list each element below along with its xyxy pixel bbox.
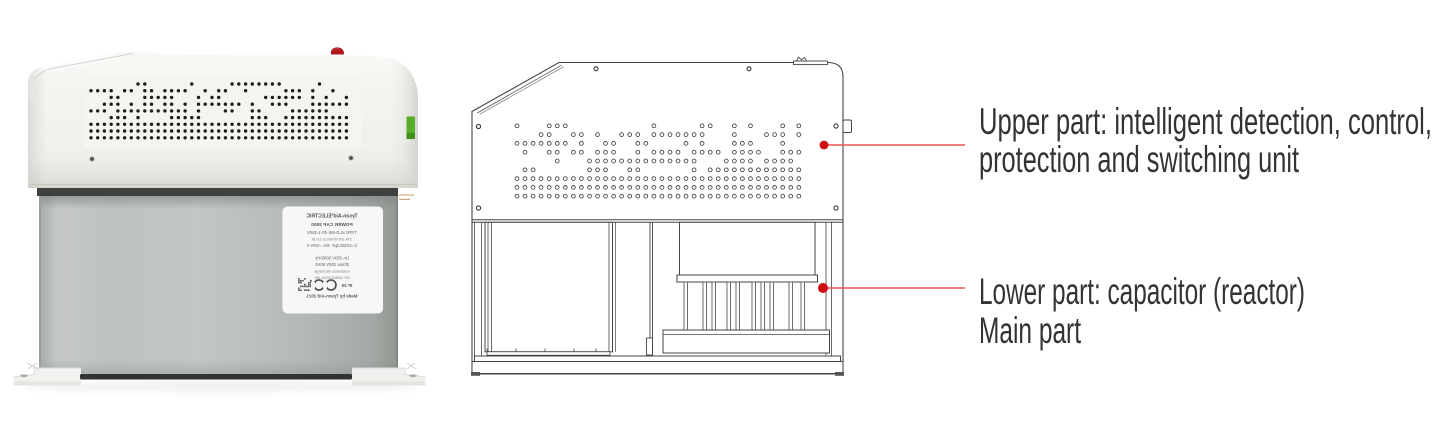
svg-text:3fmax 250V 50Hz: 3fmax 250V 50Hz xyxy=(315,262,349,267)
svg-text:IP 20: IP 20 xyxy=(341,283,352,288)
svg-text:Made by Tyson-Aid 2021: Made by Tyson-Aid 2021 xyxy=(306,294,357,299)
svg-text:Un 250V 50/60Hz: Un 250V 50/60Hz xyxy=(315,256,349,261)
svg-text:resistance discharge: resistance discharge xyxy=(314,269,350,274)
svg-text:Lower part: capacitor (reactor: Lower part: capacitor (reactor) xyxy=(979,271,1305,312)
svg-text:TYPE KLD-MK-20-1-250V: TYPE KLD-MK-20-1-250V xyxy=(307,230,357,235)
svg-text:C=1302B,3µF -5%..+10% V: C=1302B,3µF -5%..+10% V xyxy=(306,243,357,248)
svg-text:3 fA 100 0078/012-13 U6: 3 fA 100 0078/012-13 U6 xyxy=(312,238,352,242)
svg-text:Main part: Main part xyxy=(979,310,1081,351)
svg-text:Tyson-Aid°ELECTRIC: Tyson-Aid°ELECTRIC xyxy=(306,214,357,220)
svg-text:POWER CAP 2000: POWER CAP 2000 xyxy=(311,222,353,228)
svg-text:protection and switching unit: protection and switching unit xyxy=(979,139,1299,180)
svg-text:Upper part: intelligent detect: Upper part: intelligent detection, contr… xyxy=(979,101,1432,142)
